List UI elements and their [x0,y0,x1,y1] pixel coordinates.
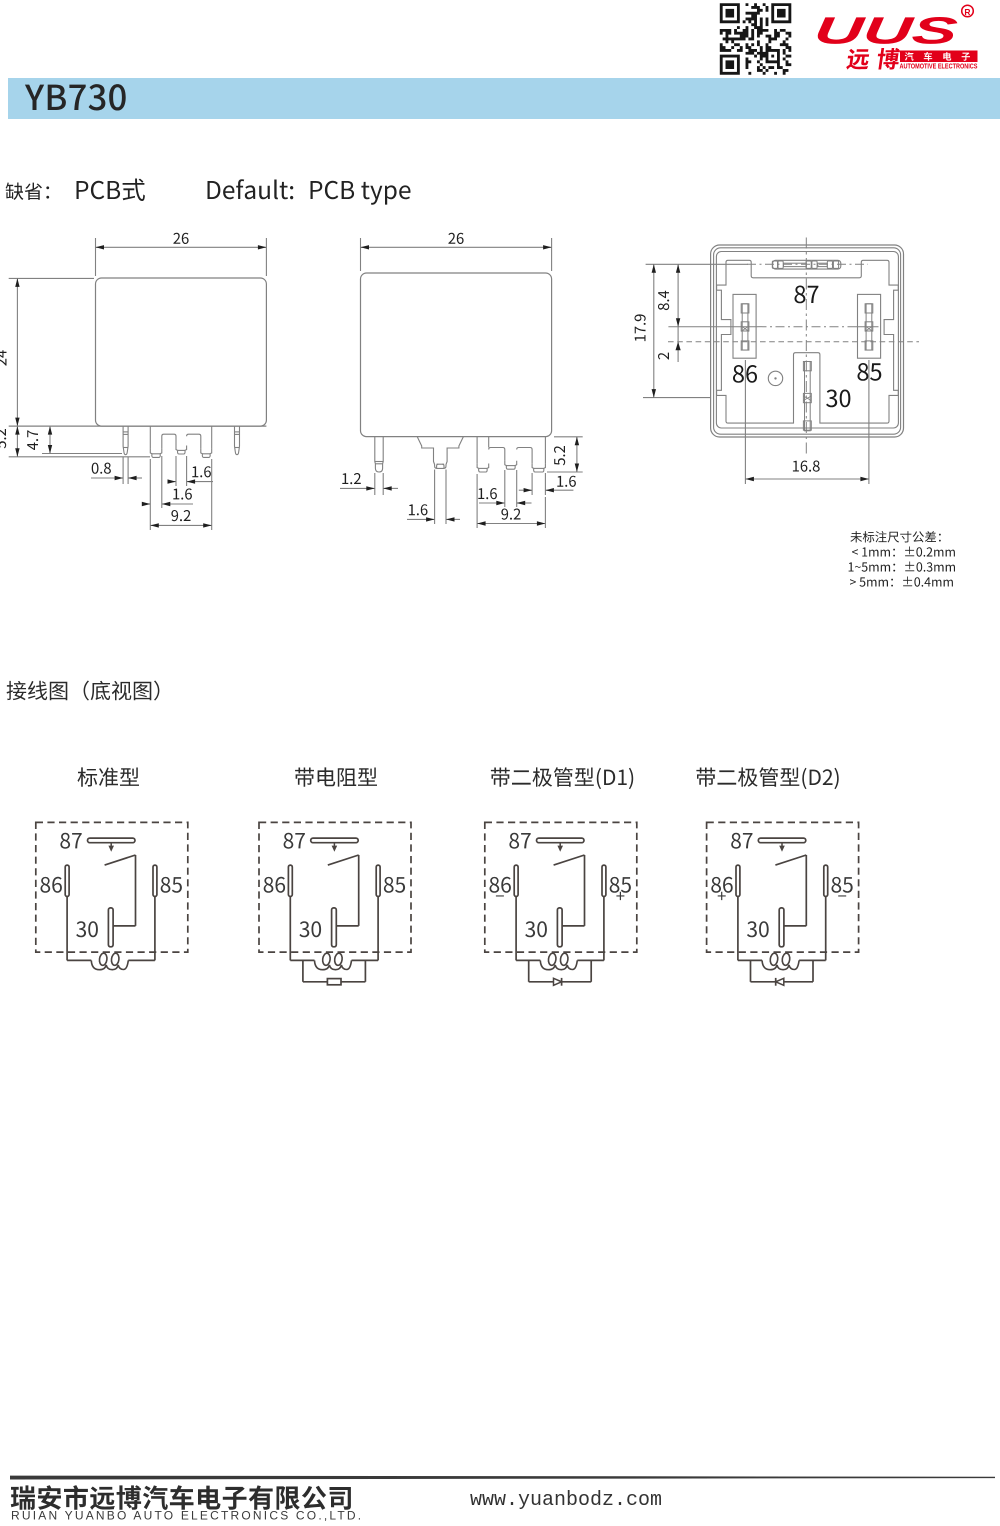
svg-text:www.yuanbodz.com: www.yuanbodz.com [470,1489,662,1512]
svg-text:UUS: UUS [812,11,960,53]
svg-text:R: R [964,7,970,17]
svg-text:AUTOMOTIVE ELECTRONICS: AUTOMOTIVE ELECTRONICS [900,62,978,71]
svg-text:RUIAN YUANBO AUTO ELECTRONICS: RUIAN YUANBO AUTO ELECTRONICS CO.,LTD. [11,1509,363,1522]
